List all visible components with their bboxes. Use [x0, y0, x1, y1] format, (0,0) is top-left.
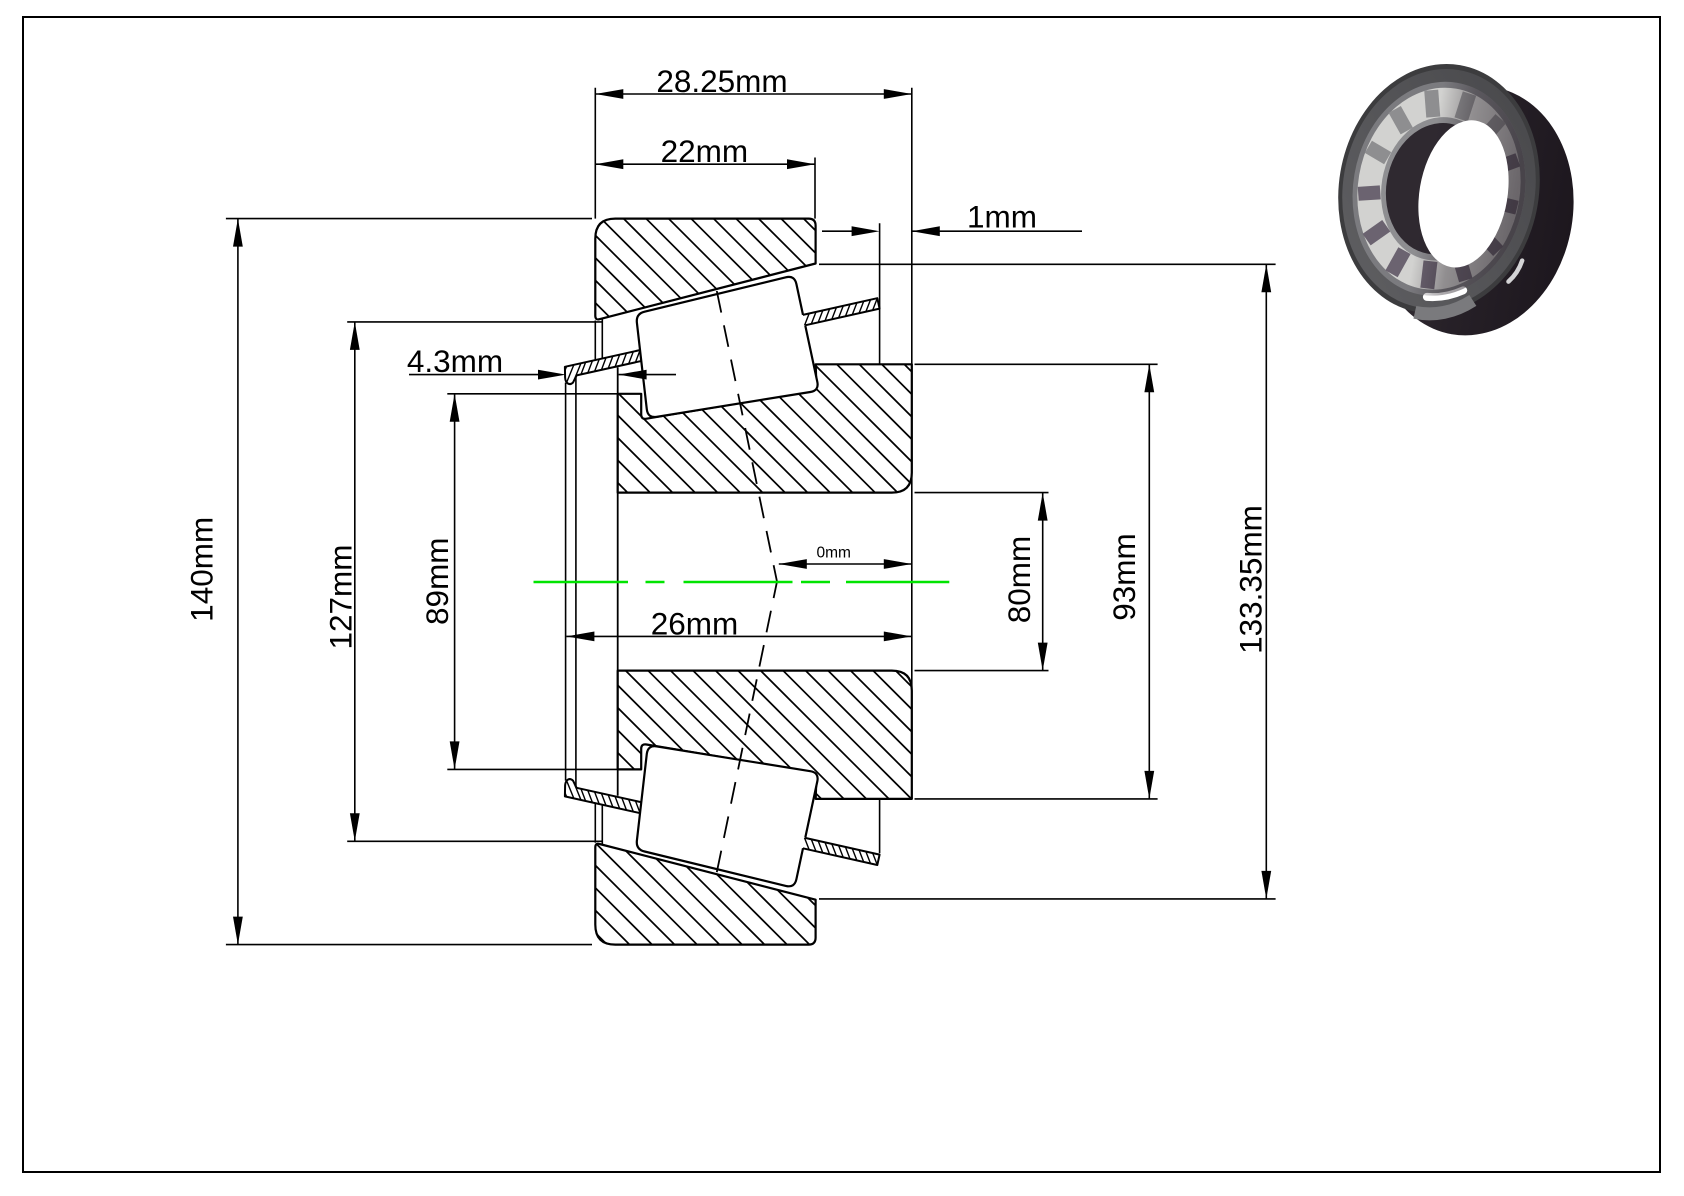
svg-text:1mm: 1mm — [967, 199, 1037, 235]
svg-text:28.25mm: 28.25mm — [656, 63, 787, 99]
svg-text:0mm: 0mm — [816, 545, 850, 562]
svg-text:140mm: 140mm — [183, 517, 219, 622]
svg-text:127mm: 127mm — [323, 544, 359, 649]
svg-text:89mm: 89mm — [419, 537, 455, 625]
svg-text:93mm: 93mm — [1106, 533, 1142, 621]
svg-text:22mm: 22mm — [661, 133, 749, 169]
svg-text:133.35mm: 133.35mm — [1233, 505, 1269, 654]
svg-text:26mm: 26mm — [651, 605, 739, 641]
svg-text:80mm: 80mm — [1001, 536, 1037, 624]
svg-text:4.3mm: 4.3mm — [407, 343, 503, 379]
